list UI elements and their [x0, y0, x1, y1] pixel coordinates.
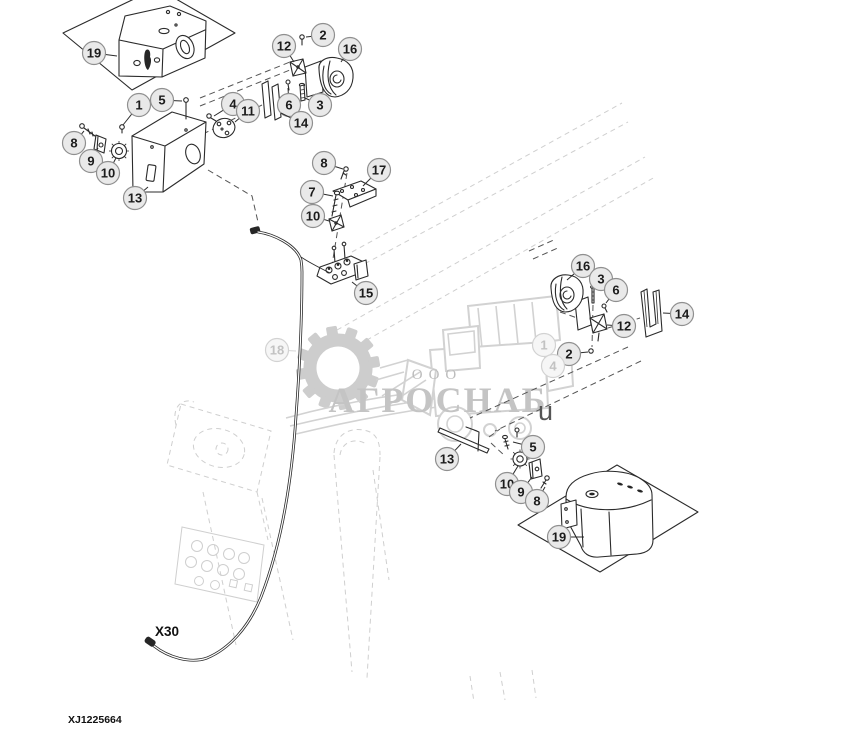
- callout-12: 12: [273, 35, 296, 63]
- part-4-bolt: [207, 114, 216, 121]
- svg-text:10: 10: [101, 166, 115, 181]
- svg-text:3: 3: [597, 272, 604, 287]
- part-14-u-strip-right: [641, 289, 662, 337]
- svg-text:13: 13: [440, 452, 454, 467]
- svg-text:12: 12: [277, 39, 291, 54]
- callout-17: 17: [363, 159, 391, 187]
- svg-text:3: 3: [316, 98, 323, 113]
- callout-1: 1: [123, 94, 151, 126]
- callout-1: 1: [533, 334, 556, 357]
- connector-x30-label: X30: [155, 624, 179, 639]
- svg-text:14: 14: [294, 116, 309, 131]
- part-10-grommet-left: [109, 141, 129, 161]
- part-15-base-plate: [317, 242, 368, 284]
- svg-text:8: 8: [320, 156, 327, 171]
- svg-text:4: 4: [549, 359, 557, 374]
- svg-text:2: 2: [319, 28, 326, 43]
- watermark-org-name: АГРОСНАБ: [329, 380, 548, 420]
- svg-text:17: 17: [372, 163, 386, 178]
- svg-text:15: 15: [359, 286, 373, 301]
- callout-bubbles: 1915891013411122166314817710151816361221…: [63, 24, 694, 549]
- callout-18: 18: [266, 339, 297, 362]
- part-5-screw: [184, 98, 189, 103]
- callout-6: 6: [605, 279, 628, 304]
- callout-8: 8: [313, 152, 344, 175]
- callout-4: 4: [542, 355, 565, 378]
- callout-14: 14: [281, 112, 313, 135]
- part-1-screw: [120, 125, 125, 133]
- svg-text:16: 16: [576, 259, 590, 274]
- callout-13: 13: [124, 187, 149, 210]
- svg-text:10: 10: [306, 209, 320, 224]
- part-6-screw-right: [602, 304, 607, 312]
- svg-text:2: 2: [565, 347, 572, 362]
- part-3-bolt-top: [299, 83, 305, 101]
- svg-text:9: 9: [517, 485, 524, 500]
- callout-15: 15: [352, 282, 378, 305]
- callout-16: 16: [339, 38, 362, 63]
- svg-text:9: 9: [87, 154, 94, 169]
- part-2-screw-top: [300, 35, 304, 45]
- part-8-screw-bottom: [541, 476, 549, 488]
- svg-text:8: 8: [70, 136, 77, 151]
- callout-8: 8: [63, 131, 86, 155]
- callout-13: 13: [436, 444, 462, 471]
- svg-text:6: 6: [285, 98, 292, 113]
- callout-14: 14: [663, 303, 694, 326]
- parts-diagram-page: ООО АГРОСНАБ u: [0, 0, 841, 731]
- svg-text:16: 16: [343, 42, 357, 57]
- callout-19: 19: [83, 42, 118, 65]
- part-10-clamp-middle: [329, 215, 344, 231]
- watermark-stray-char: u: [538, 396, 553, 426]
- svg-text:11: 11: [241, 104, 255, 119]
- svg-text:8: 8: [533, 494, 540, 509]
- svg-text:19: 19: [552, 530, 566, 545]
- svg-text:12: 12: [617, 319, 631, 334]
- part-2-screw-right: [589, 349, 593, 353]
- part-16-horn-top: [305, 57, 353, 97]
- watermark-logo: ООО АГРОСНАБ u: [286, 296, 582, 441]
- svg-text:5: 5: [529, 440, 536, 455]
- svg-text:19: 19: [87, 46, 101, 61]
- svg-text:5: 5: [158, 93, 165, 108]
- svg-text:13: 13: [128, 191, 142, 206]
- svg-text:1: 1: [135, 98, 142, 113]
- drawing-number: XJ1225664: [68, 714, 122, 726]
- part-7-bolt: [332, 191, 340, 216]
- exploded-parts-diagram: ООО АГРОСНАБ u: [0, 0, 841, 731]
- svg-text:6: 6: [612, 283, 619, 298]
- callout-12: 12: [607, 315, 636, 338]
- callout-5: 5: [151, 89, 183, 112]
- svg-text:7: 7: [308, 185, 315, 200]
- callout-7: 7: [301, 181, 334, 204]
- svg-text:14: 14: [675, 307, 690, 322]
- part-9-bracket-bottom: [529, 459, 542, 479]
- svg-text:1: 1: [540, 338, 547, 353]
- svg-text:18: 18: [270, 343, 284, 358]
- callout-10: 10: [302, 205, 330, 228]
- callout-2: 2: [306, 24, 335, 47]
- part-12-clamp-top: [290, 59, 306, 76]
